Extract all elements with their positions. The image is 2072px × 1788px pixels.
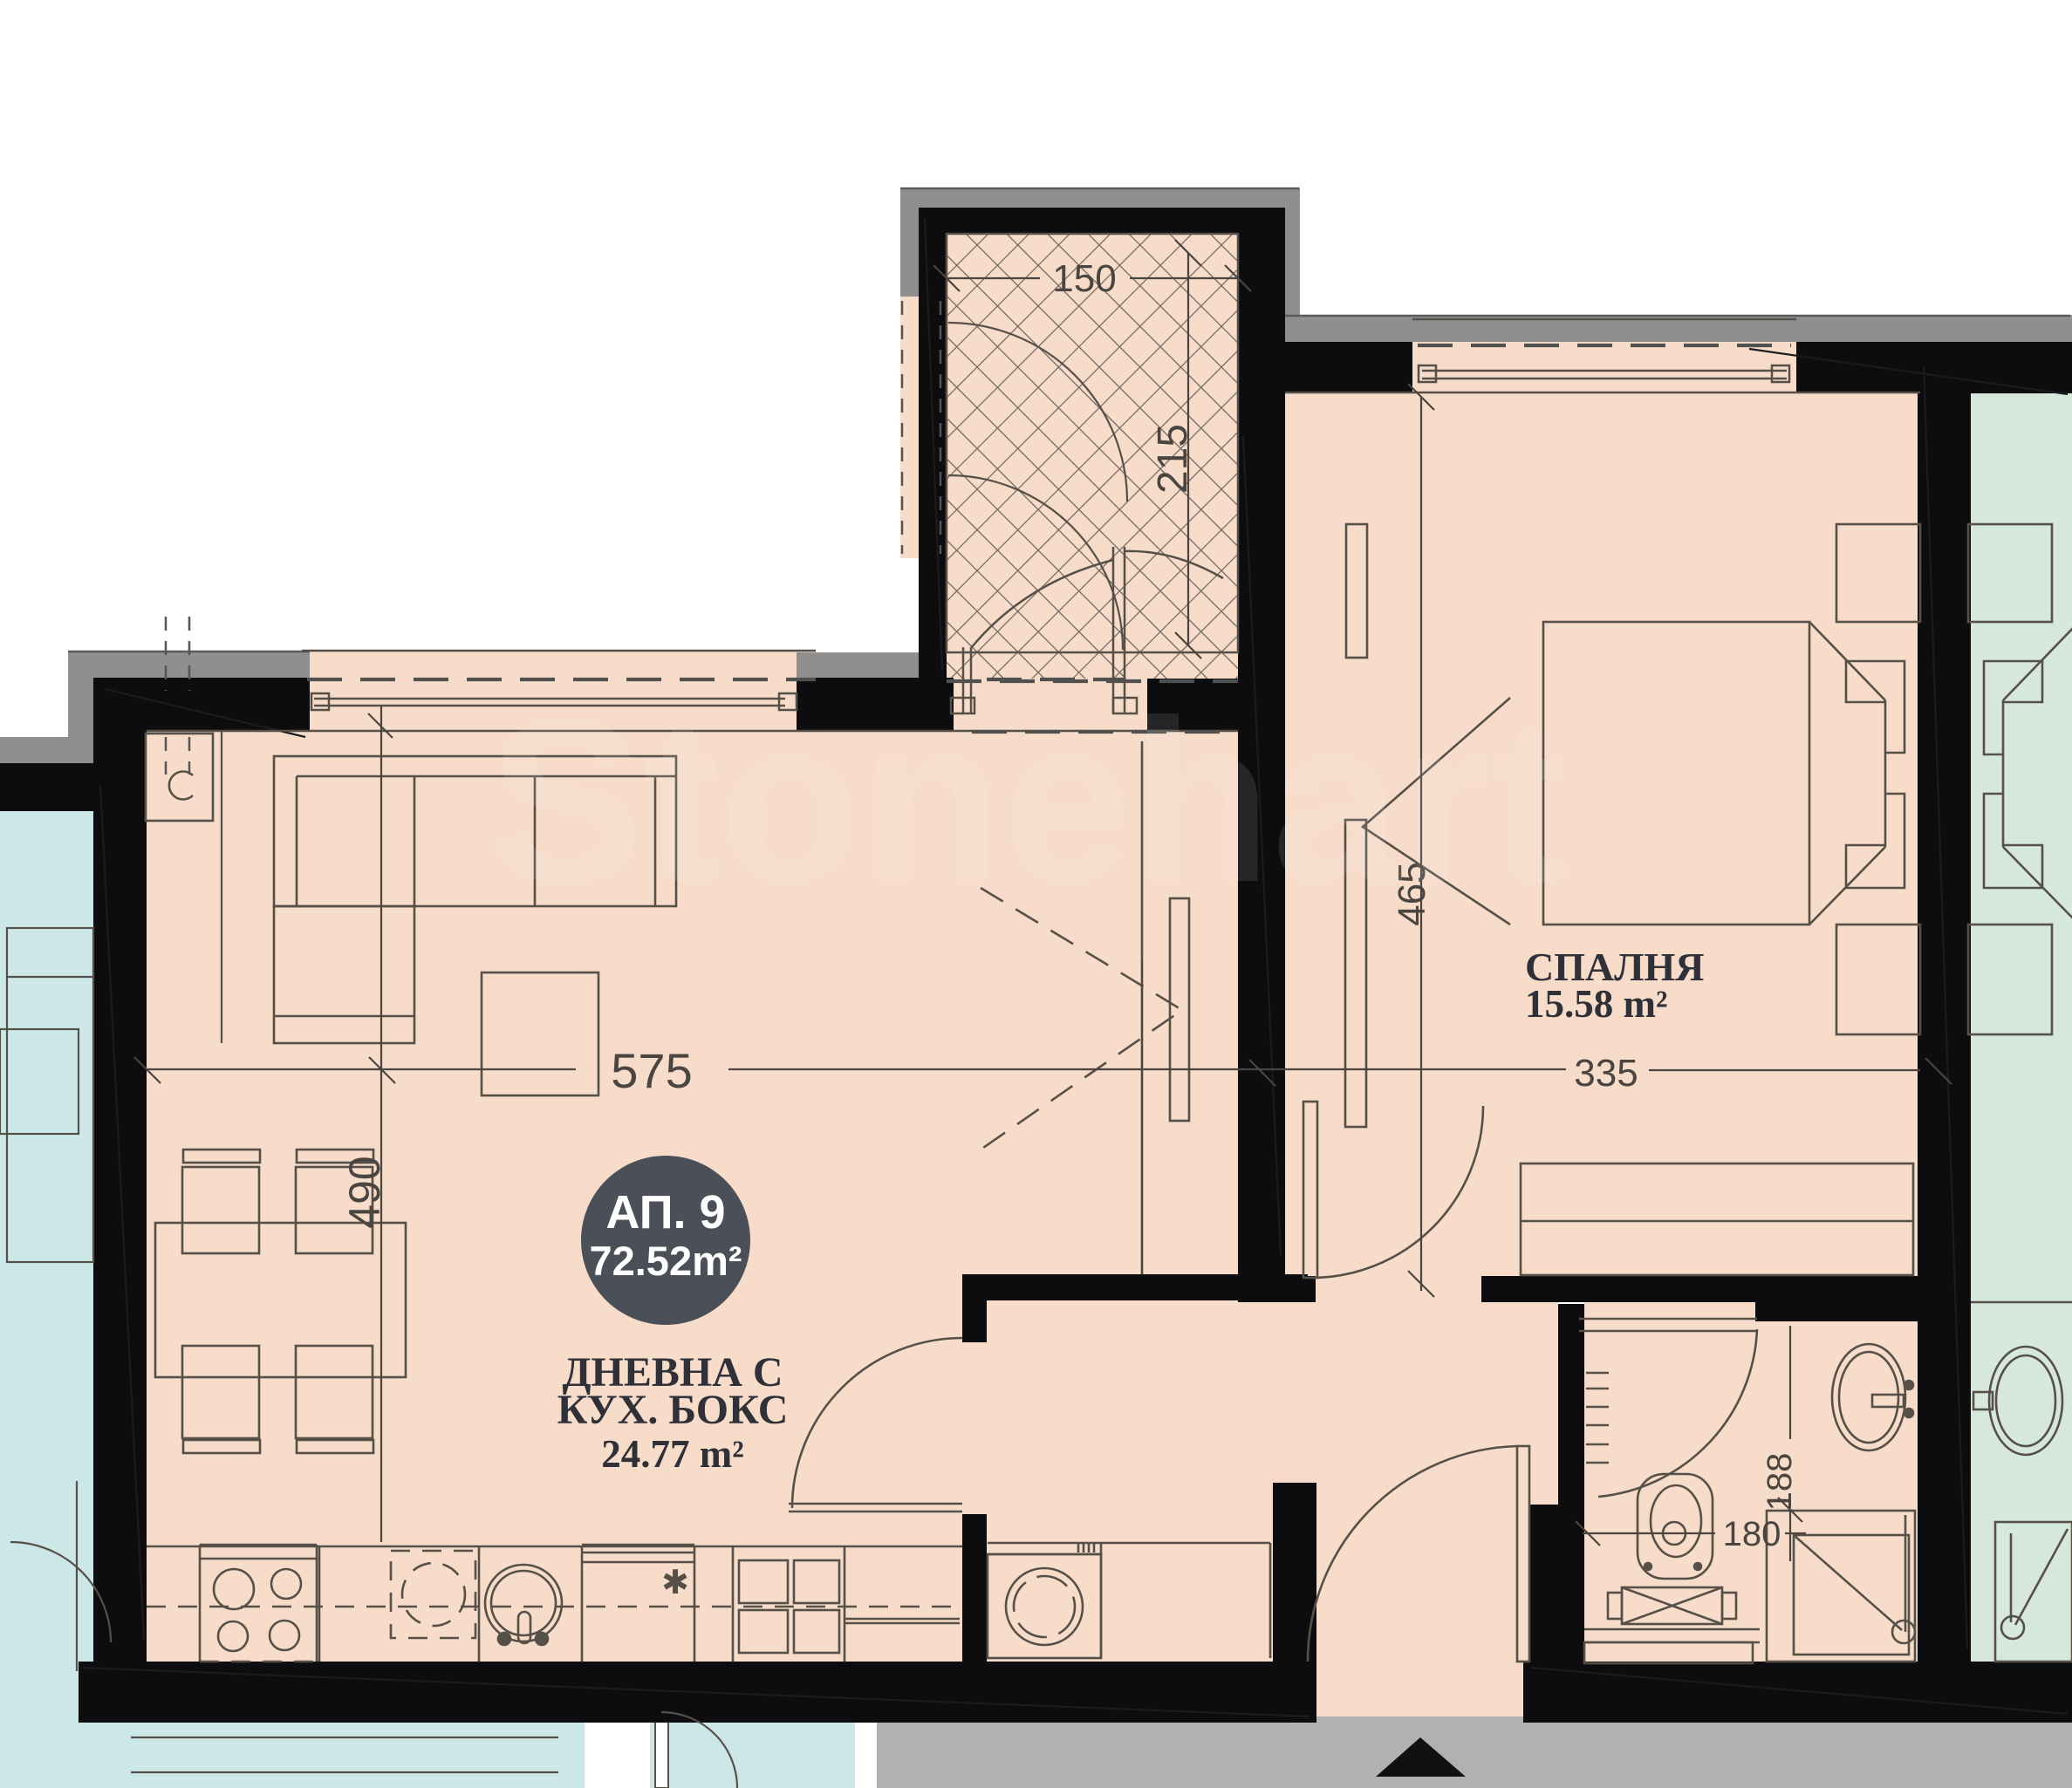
svg-text:335: 335 (1574, 1052, 1638, 1095)
svg-text:188: 188 (1761, 1453, 1799, 1512)
svg-text:КУХ. БОКС: КУХ. БОКС (557, 1387, 789, 1433)
svg-text:✱: ✱ (661, 1565, 689, 1601)
svg-text:15.58 m²: 15.58 m² (1525, 982, 1667, 1026)
svg-text:24.77 m²: 24.77 m² (601, 1432, 743, 1476)
svg-text:Stonehart: Stonehart (489, 672, 1568, 931)
svg-text:490: 490 (340, 1156, 389, 1228)
svg-text:АП. 9: АП. 9 (605, 1186, 725, 1239)
svg-text:215: 215 (1150, 424, 1196, 494)
svg-text:180: 180 (1723, 1515, 1781, 1553)
svg-text:72.52m²: 72.52m² (589, 1238, 742, 1284)
svg-text:575: 575 (611, 1043, 692, 1098)
svg-text:150: 150 (1052, 257, 1116, 300)
